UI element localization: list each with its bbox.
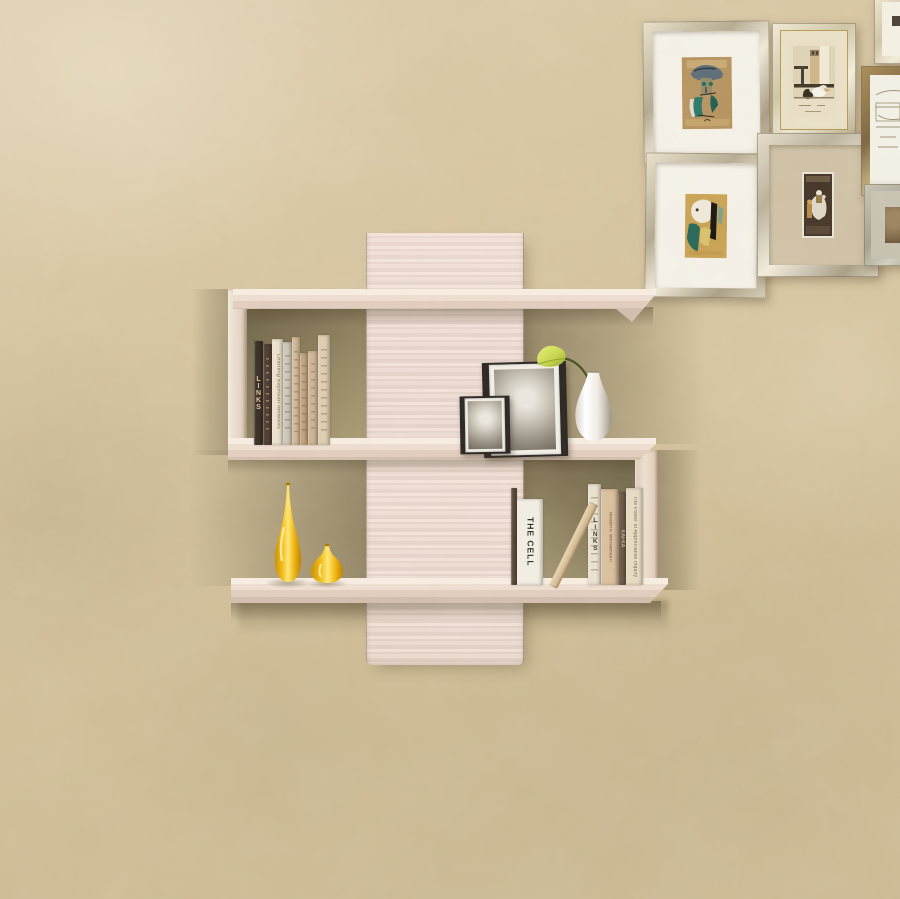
pelican-print-artwork [791, 42, 837, 118]
book-spine: LINKS [588, 484, 601, 585]
book-spine: KAFKA [618, 492, 626, 585]
book-spine: Modern Mendelism [601, 489, 618, 585]
book-title: Modern Mendelism [607, 512, 613, 562]
upper-book-row: LINKS Learning Bayesian Networks [254, 333, 344, 445]
book-spine [292, 337, 300, 445]
book-title: KAFKA [620, 530, 625, 547]
pencil-sketch-mat [870, 75, 900, 187]
book-spine: LINKS [254, 341, 263, 445]
book-title: Learning Bayesian Networks [275, 354, 281, 429]
horse-miniature-mat [769, 145, 867, 265]
book-spine [308, 351, 318, 445]
wall-shadow-left-of-panel [190, 289, 230, 455]
wall-scene: LINKS Learning Bayesian Networks [0, 0, 900, 899]
book-spine [263, 344, 272, 445]
book-spine: THE CELL [517, 499, 543, 585]
small-portrait-photo [468, 401, 503, 450]
book-spine [300, 353, 308, 445]
book-title: THE CELL [526, 517, 535, 567]
book-title: LINKS [255, 376, 262, 411]
pelican-print-mat [780, 30, 848, 130]
abstract-face-artwork [685, 193, 728, 257]
tall-yellow-vase [271, 481, 305, 585]
abstract-face-mat [654, 162, 757, 288]
cubist-portrait-mat [652, 30, 760, 154]
book-title: The Power of Appreciative Inquiry [632, 496, 637, 577]
white-flower-vase [571, 370, 616, 443]
abstract-face-frame [644, 152, 768, 298]
book-spine: Learning Bayesian Networks [272, 339, 283, 445]
book-title: LINKS [591, 517, 598, 552]
book-spine: The Power of Appreciative Inquiry [626, 488, 643, 585]
small-yellow-vase [309, 542, 345, 585]
book-spine [283, 342, 292, 445]
horse-miniature-artwork [804, 174, 832, 236]
sepia-etching-artwork [885, 207, 900, 243]
sepia-etching-mat [871, 191, 900, 259]
pencil-sketch-artwork [870, 75, 900, 169]
left-side-panel [228, 289, 247, 455]
wall-shadow-right-of-panel [658, 450, 704, 590]
sepia-etching-frame [864, 184, 900, 266]
bottom-shelf-cast-shadow [231, 601, 661, 621]
cubist-portrait-artwork [681, 56, 732, 129]
corner-partial-frame [874, 0, 900, 64]
small-photo-frame [459, 396, 510, 455]
top-shelf-cast-shadow [233, 307, 653, 327]
corner-partial-art [882, 2, 900, 56]
small-photo-mat [465, 398, 506, 453]
cubist-portrait-frame [642, 20, 770, 164]
book-spine [318, 335, 330, 445]
pencil-sketch-frame [861, 66, 900, 196]
pelican-print-frame [772, 23, 856, 137]
